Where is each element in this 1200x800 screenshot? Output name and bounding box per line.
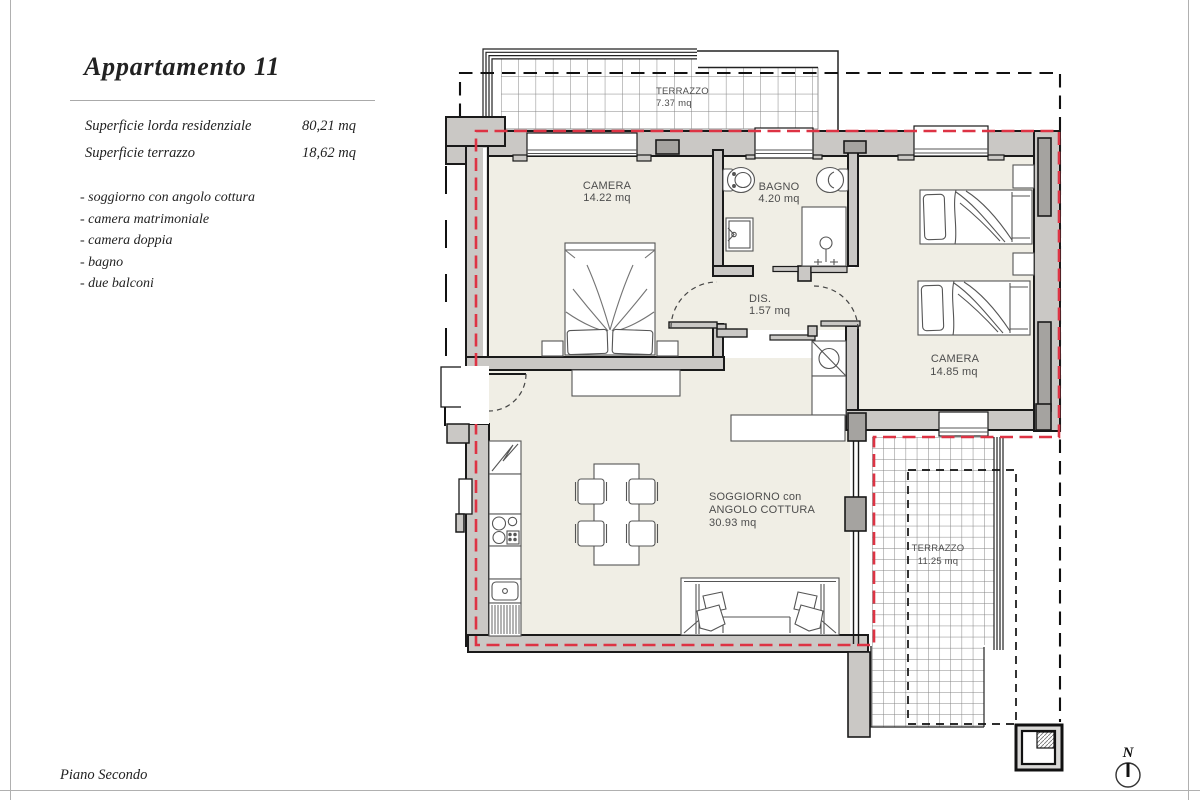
svg-text:30.93 mq: 30.93 mq <box>709 517 756 529</box>
svg-text:7.37 mq: 7.37 mq <box>656 98 692 109</box>
svg-text:11.25 mq: 11.25 mq <box>918 556 959 567</box>
svg-text:ANGOLO COTTURA: ANGOLO COTTURA <box>709 504 816 516</box>
svg-text:N: N <box>1122 745 1135 761</box>
svg-text:TERRAZZO: TERRAZZO <box>656 86 709 97</box>
svg-text:SOGGIORNO con: SOGGIORNO con <box>709 491 801 503</box>
svg-text:14.22 mq: 14.22 mq <box>583 192 630 204</box>
svg-text:14.85 mq: 14.85 mq <box>930 366 977 378</box>
svg-text:1.57 mq: 1.57 mq <box>749 305 790 317</box>
svg-text:DIS.: DIS. <box>749 293 771 305</box>
svg-text:BAGNO: BAGNO <box>759 181 800 193</box>
svg-text:TERRAZZO: TERRAZZO <box>912 543 965 554</box>
svg-text:CAMERA: CAMERA <box>931 353 980 365</box>
svg-text:CAMERA: CAMERA <box>583 180 632 192</box>
svg-text:4.20 mq: 4.20 mq <box>758 193 799 205</box>
